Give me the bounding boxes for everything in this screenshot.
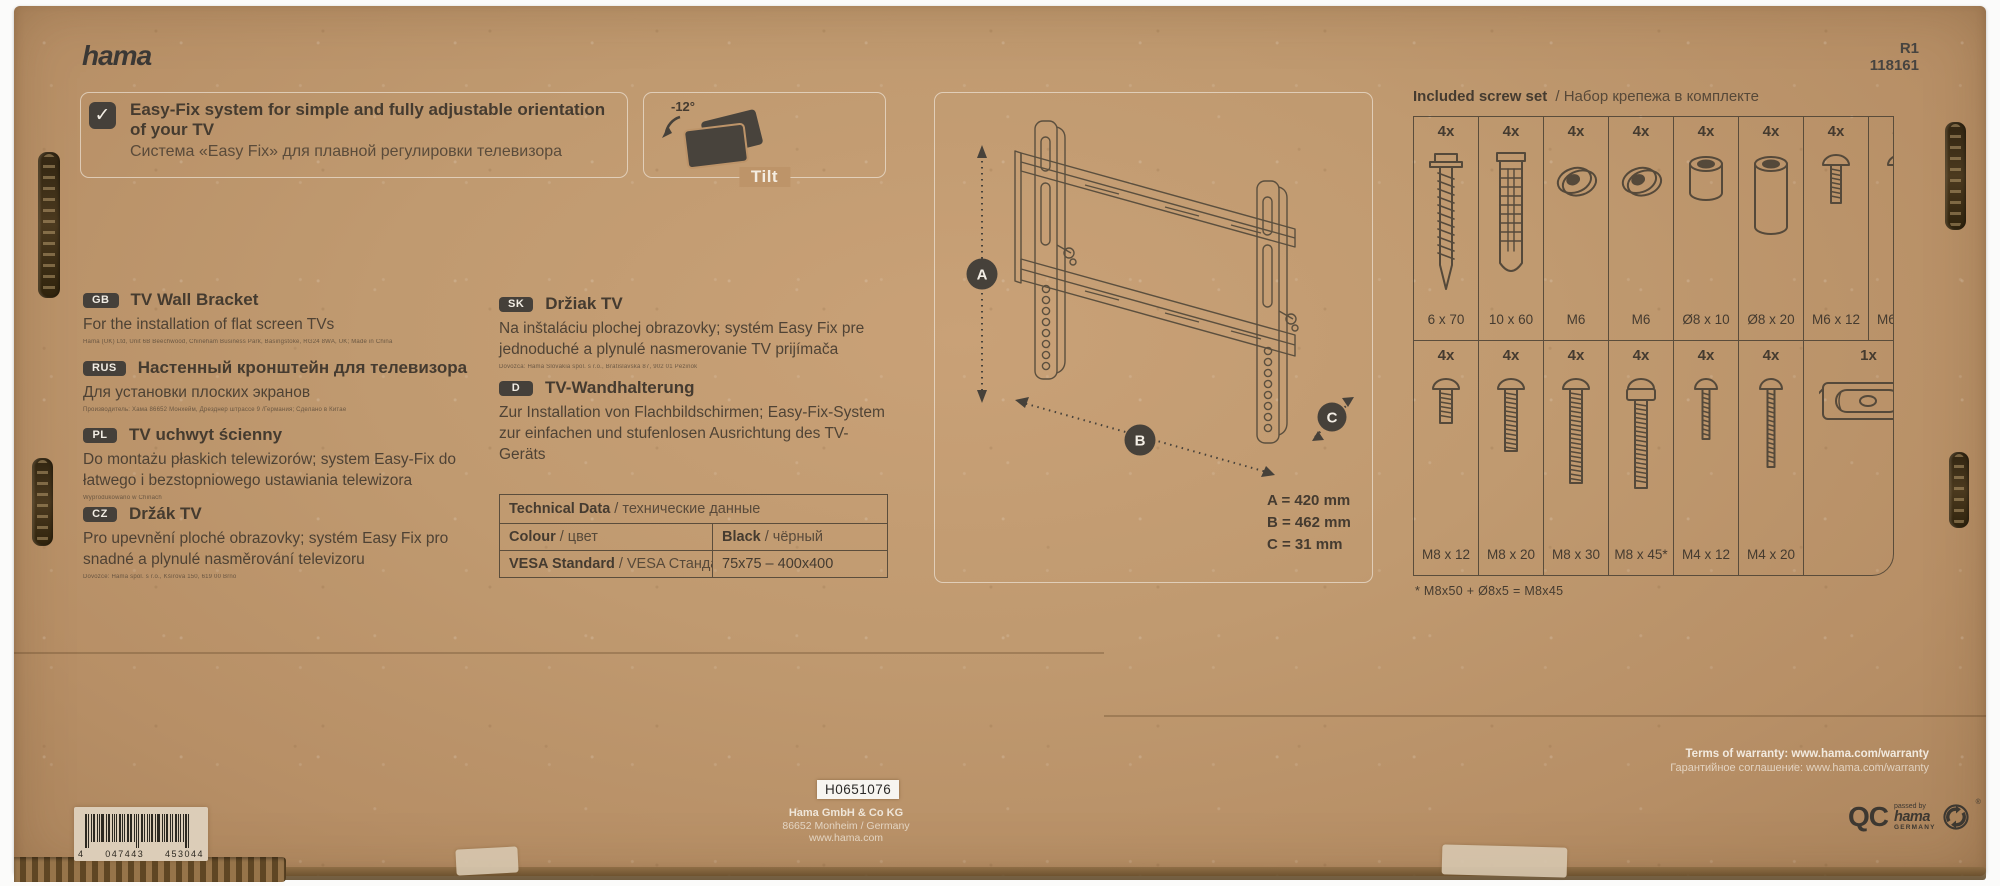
registered-mark: ® — [1976, 799, 1981, 806]
lang-title: Držiak TV — [545, 294, 622, 314]
screw-item: 4xM4 x 20 — [1738, 340, 1803, 575]
model-code: R1 — [1870, 40, 1919, 57]
warranty-ru: Гарантийное соглашение: www.hama.com/war… — [1670, 762, 1929, 774]
screw-item: 4xM4 x 12 — [1673, 340, 1738, 575]
screw-size-label: M6 — [1567, 312, 1586, 332]
screw-size-label: M8 x 20 — [1487, 547, 1535, 567]
spirit-level-icon — [1819, 369, 1895, 547]
feature-title: Easy-Fix system for simple and fully adj… — [130, 100, 610, 140]
lang-fineprint: Hama (UK) Ltd, Unit 6B Beechwood, Chineh… — [83, 338, 485, 346]
screw-size-label: 6 x 70 — [1428, 312, 1465, 332]
dimension-values: A = 420 mm B = 462 mm C = 31 mm — [1267, 490, 1351, 556]
box-seam — [1104, 715, 1986, 717]
screw-size-label: 10 x 60 — [1489, 312, 1533, 332]
dim-marker-c: C — [1327, 410, 1338, 427]
dim-marker-a: A — [977, 267, 988, 284]
screw-size-label: M6 x 20 — [1877, 312, 1894, 332]
lang-title: TV-Wandhalterung — [545, 378, 695, 398]
box-cutout — [32, 458, 53, 546]
box-cutout — [38, 152, 60, 298]
batch-label: H0651076 — [817, 780, 899, 799]
machine-screw-long-icon — [1871, 145, 1894, 312]
lang-section-pl: PL TV uchwyt ścienny Do montażu płaskich… — [83, 425, 485, 502]
tape-piece — [455, 846, 518, 875]
screw-item: 4x6 x 70 — [1414, 117, 1478, 340]
screw-size-label: M8 x 45* — [1614, 547, 1667, 567]
dim-marker-b: B — [1135, 433, 1146, 450]
tech-row-label: Colour/ цвет — [500, 523, 712, 550]
tilt-feature: -12° Tilt — [643, 92, 886, 178]
tech-row-value: Black/ чёрный — [712, 523, 887, 550]
barcode-digits: 4047443453044 — [78, 849, 204, 859]
screw-size-label: M8 x 12 — [1422, 547, 1470, 567]
screw-item: 4xØ8 x 10 — [1673, 117, 1738, 340]
screw-qty: 4x — [1763, 123, 1780, 145]
screw-qty: 4x — [1633, 347, 1650, 369]
box-bottom-edge — [264, 867, 1986, 880]
screw-qty: 4x — [1763, 347, 1780, 369]
lang-section-rus: RUS Настенный кронштейн для телевизора Д… — [83, 358, 485, 414]
barcode-bars — [85, 814, 189, 846]
screw-item: 4xM6 x 12 — [1803, 117, 1868, 340]
tech-row-value: 75x75 – 400x400 — [712, 550, 887, 577]
screw-item: 4xM8 x 30 — [1543, 340, 1608, 575]
screw-size-label: Ø8 x 10 — [1682, 312, 1729, 332]
packaging-photo: hama R1 118161 ✓ Easy-Fix system for sim… — [0, 0, 2000, 886]
lang-fineprint: Dovozca: Hama Slovakia spol. s r.o., Bra… — [499, 363, 895, 371]
screw-qty: 4x — [1828, 123, 1845, 145]
tilt-label: Tilt — [739, 167, 790, 187]
lang-badge: PL — [83, 428, 117, 443]
screw-item: 4x10 x 60 — [1478, 117, 1543, 340]
washer-icon — [1546, 145, 1606, 312]
screw-size-label: M4 x 20 — [1747, 547, 1795, 567]
screw-item: 4xM6 x 20 — [1868, 117, 1894, 340]
lang-title: TV uchwyt ścienny — [129, 425, 282, 445]
technical-data-table: Technical Data/ технические данные Colou… — [499, 494, 888, 578]
lang-desc: Na inštaláciu plochej obrazovky; systém … — [499, 318, 895, 360]
bolt-m4-20-icon — [1741, 369, 1801, 547]
screw-size-label: M8 x 30 — [1552, 547, 1600, 567]
tilt-icon — [652, 107, 782, 171]
bolt-m4-12-icon — [1676, 369, 1736, 547]
manufacturer-name: Hama GmbH & Co KG — [716, 807, 976, 820]
lang-desc: Pro upevnění ploché obrazovky; systém Ea… — [83, 528, 485, 570]
feature-callout: ✓ Easy-Fix system for simple and fully a… — [80, 92, 628, 178]
bolt-m8-12-icon — [1416, 369, 1476, 547]
machine-screw-short-icon — [1806, 145, 1866, 312]
lang-desc: Do montażu płaskich telewizorów; system … — [83, 449, 485, 491]
bolt-m8-20-icon — [1481, 369, 1541, 547]
lang-title: TV Wall Bracket — [131, 290, 259, 310]
lang-badge: RUS — [83, 361, 126, 376]
manufacturer-address: 86652 Monheim / Germany — [716, 820, 976, 833]
manufacturer-website: www.hama.com — [716, 832, 976, 845]
feature-subtitle: Система «Easy Fix» для плавной регулиров… — [130, 143, 610, 161]
screw-qty: 4x — [1568, 123, 1585, 145]
wall-anchor-icon — [1481, 145, 1541, 312]
screw-qty: 1x — [1860, 347, 1877, 369]
warranty-block: Terms of warranty: www.hama.com/warranty… — [1670, 748, 1929, 774]
bolt-m8-30-icon — [1546, 369, 1606, 547]
qc-logo: QC passed by hama GERMANY ® — [1848, 801, 1981, 833]
checkmark-icon: ✓ — [89, 102, 116, 129]
barcode-label: 4047443453044 — [74, 807, 208, 861]
lang-badge: GB — [83, 293, 119, 308]
screw-size-label: M4 x 12 — [1682, 547, 1730, 567]
lang-fineprint: Wyprodukowano w Chinach — [83, 494, 485, 502]
screw-item: 4xM8 x 12 — [1414, 340, 1478, 575]
lang-desc: For the installation of flat screen TVs — [83, 314, 485, 335]
screw-item: 4xM8 x 45* — [1608, 340, 1673, 575]
box-cutout — [1949, 452, 1969, 528]
screw-item: 4xØ8 x 20 — [1738, 117, 1803, 340]
screw-qty: 4x — [1438, 347, 1455, 369]
screw-item: 4xM6 — [1608, 117, 1673, 340]
screw-qty: 4x — [1698, 347, 1715, 369]
hama-logo: hama — [82, 40, 151, 72]
qc-letters: QC — [1848, 801, 1888, 833]
washer-icon — [1611, 145, 1671, 312]
screw-qty: 4x — [1503, 123, 1520, 145]
screw-qty: 4x — [1893, 123, 1894, 145]
screw-set-title: Included screw set / Набор крепежа в ком… — [1413, 88, 1759, 105]
manufacturer-block: Hama GmbH & Co KG 86652 Monheim / German… — [716, 807, 976, 845]
lang-title: Настенный кронштейн для телевизора — [138, 358, 467, 378]
lang-fineprint: Производитель: Хама 86652 Монхейм, Дрезд… — [83, 406, 485, 414]
screw-qty: 4x — [1438, 123, 1455, 145]
lang-section-sk: SK Držiak TV Na inštaláciu plochej obraz… — [499, 294, 895, 371]
lang-badge: CZ — [83, 507, 117, 522]
bolt-m8-45-spacer-icon — [1611, 369, 1671, 547]
screw-qty: 4x — [1698, 123, 1715, 145]
screw-item: 1x — [1803, 340, 1894, 575]
dim-b: B = 462 mm — [1267, 512, 1351, 534]
screw-item: 4xM6 — [1543, 117, 1608, 340]
dim-a: A = 420 mm — [1267, 490, 1351, 512]
screw-qty: 4x — [1503, 347, 1520, 369]
screw-item: 4xM8 x 20 — [1478, 340, 1543, 575]
lang-desc: Для установки плоских экранов — [83, 382, 485, 403]
wood-screw-icon — [1416, 145, 1476, 312]
lang-title: Držák TV — [129, 504, 202, 524]
box-cutout — [1945, 122, 1966, 230]
qc-country: GERMANY — [1894, 825, 1936, 832]
tech-table-header: Technical Data/ технические данные — [500, 495, 887, 523]
qc-brand: hama — [1894, 810, 1936, 825]
check-glyph: ✓ — [95, 104, 111, 127]
lang-section-cz: CZ Držák TV Pro upevnění ploché obrazovk… — [83, 504, 485, 581]
cardboard-box: hama R1 118161 ✓ Easy-Fix system for sim… — [14, 6, 1986, 876]
tech-row-label: VESA Standard/ VESA Стандарт — [500, 550, 712, 577]
dim-c: C = 31 mm — [1267, 534, 1351, 556]
model-number: R1 118161 — [1870, 40, 1919, 74]
screw-set-table: 4x6 x 704x10 x 604xM64xM64xØ8 x 104xØ8 x… — [1413, 116, 1894, 576]
screw-size-label: Ø8 x 20 — [1747, 312, 1794, 332]
lang-section-d: D TV-Wandhalterung Zur Installation von … — [499, 378, 895, 465]
screw-footnote: * M8x50 + Ø8x5 = M8x45 — [1415, 584, 1563, 598]
screw-qty: 4x — [1568, 347, 1585, 369]
warranty-en: Terms of warranty: www.hama.com/warranty — [1670, 748, 1929, 760]
lang-badge: SK — [499, 297, 533, 312]
spacer-short-icon — [1676, 145, 1736, 312]
screw-qty: 4x — [1633, 123, 1650, 145]
tape-piece — [1442, 844, 1568, 877]
box-seam — [14, 652, 1104, 654]
lang-section-gb: GB TV Wall Bracket For the installation … — [83, 290, 485, 346]
spacer-long-icon — [1741, 145, 1801, 312]
article-number: 118161 — [1870, 57, 1919, 74]
lang-badge: D — [499, 381, 533, 396]
lang-fineprint: Dovozce: Hama spol. s r.o., Kšírova 150,… — [83, 573, 485, 581]
screw-size-label: M6 — [1632, 312, 1651, 332]
green-dot-icon — [1942, 803, 1970, 831]
screw-size-label: M6 x 12 — [1812, 312, 1860, 332]
lang-desc: Zur Installation von Flachbildschirmen; … — [499, 402, 895, 465]
